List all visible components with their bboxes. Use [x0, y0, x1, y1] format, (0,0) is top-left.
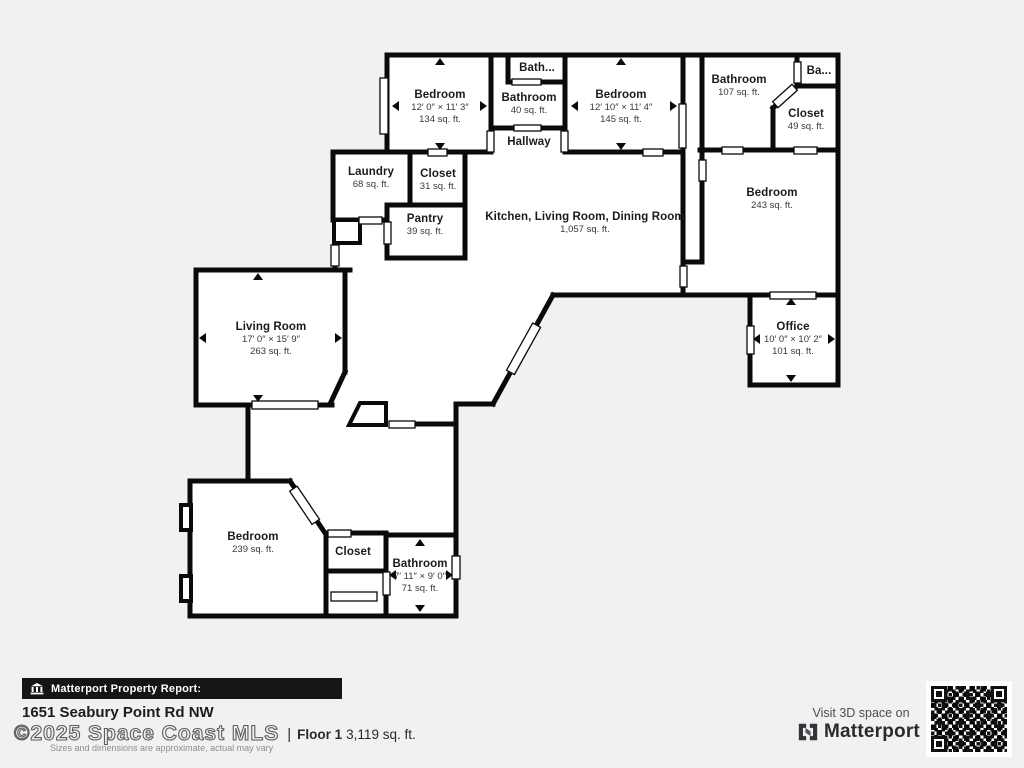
property-address: 1651 Seabury Point Rd NW: [22, 704, 214, 721]
building-icon: [30, 683, 44, 695]
room-label-bedroom-2: Bedroom 12′ 10″ × 11′ 4″ 145 sq. ft.: [590, 89, 653, 125]
qr-code: [926, 681, 1012, 757]
room-label-bath-small: Bath...: [519, 62, 555, 74]
room-label-pantry: Pantry 39 sq. ft.: [407, 213, 443, 237]
report-header-bar: Matterport Property Report:: [22, 678, 342, 699]
room-label-closet-31: Closet 31 sq. ft.: [420, 168, 456, 192]
room-label-bathroom-71: Bathroom 7′ 11″ × 9′ 0″ 71 sq. ft.: [392, 558, 447, 594]
matterport-logo-icon: [797, 721, 819, 743]
room-label-kitchen-living-dining: Kitchen, Living Room, Dining Room 1,057 …: [485, 211, 684, 235]
qr-finder-top-right: [991, 686, 1007, 702]
room-label-bathroom-107: Bathroom 107 sq. ft.: [711, 74, 766, 98]
room-label-ba-small: Ba...: [807, 65, 832, 77]
floor-area: 3,119 sq. ft.: [346, 727, 416, 742]
room-label-office: Office 10′ 0″ × 10′ 2″ 101 sq. ft.: [764, 321, 822, 357]
room-label-bedroom-1: Bedroom 12′ 0″ × 11′ 3″ 134 sq. ft.: [411, 89, 468, 125]
room-label-bedroom-3: Bedroom 243 sq. ft.: [746, 187, 797, 211]
room-label-hallway: Hallway: [507, 136, 551, 148]
room-label-closet-bottom: Closet: [335, 546, 371, 558]
report-title: Matterport Property Report:: [51, 683, 201, 695]
room-label-living-room: Living Room 17′ 0″ × 15′ 9″ 263 sq. ft.: [236, 321, 307, 357]
disclaimer-text: Sizes and dimensions are approximate, ac…: [50, 743, 273, 753]
qr-finder-top-left: [931, 686, 947, 702]
separator: |: [287, 726, 291, 743]
room-label-laundry: Laundry 68 sq. ft.: [348, 166, 394, 190]
qr-finder-bottom-left: [931, 736, 947, 752]
matterport-wordmark: Matterport: [824, 721, 920, 743]
floor-label: Floor 1: [297, 727, 342, 742]
visit-3d-cta: Visit 3D space on: [806, 706, 916, 720]
room-label-closet-49: Closet 49 sq. ft.: [788, 108, 824, 132]
room-label-bedroom-4: Bedroom 239 sq. ft.: [227, 531, 278, 555]
matterport-brand: Matterport: [797, 721, 920, 743]
room-label-bathroom-40: Bathroom 40 sq. ft.: [501, 92, 556, 116]
